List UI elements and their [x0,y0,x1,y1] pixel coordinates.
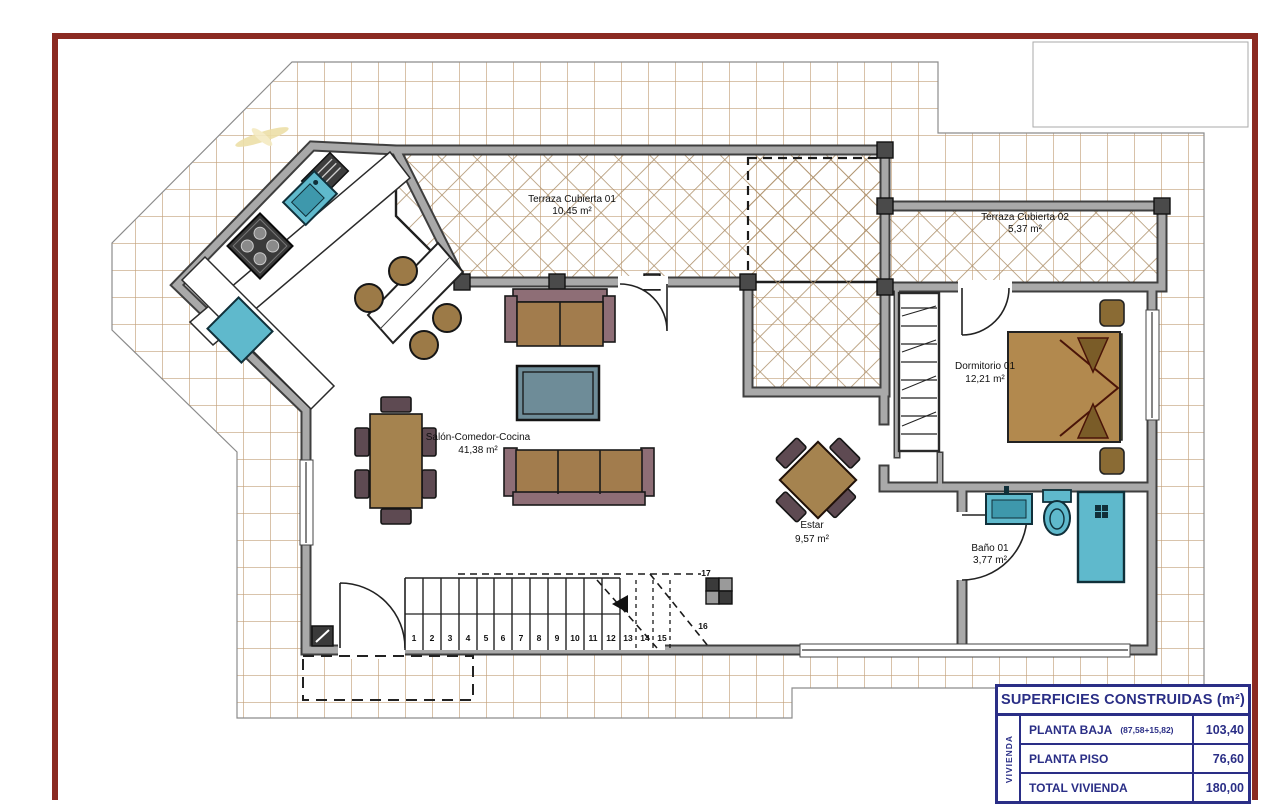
salon-name: Salón-Comedor-Cocina [426,432,531,443]
stair-number: 1 [412,633,417,643]
coffee-table [517,366,599,420]
row-value: 76,60 [1192,745,1248,772]
shower [1078,492,1124,582]
salon-area: 41,38 m² [458,445,498,456]
sofa-three-seat [504,448,654,505]
terraza1-name: Terraza Cubierta 01 [528,194,616,205]
stair-number: 10 [570,633,580,643]
row-label: TOTAL VIVIENDA [1029,781,1128,795]
table-row: PLANTA PISO 76,60 [1021,745,1248,774]
surfaces-summary-table: SUPERFICIES CONSTRUIDAS (m²) VIVIENDA PL… [995,684,1251,804]
summary-group-column: VIVIENDA [998,716,1021,801]
bathroom-door-opening [955,512,969,580]
terraza2-name: Terraza Cubierta 02 [981,212,1069,223]
stair-number: 7 [519,633,524,643]
row-label: PLANTA PISO [1029,752,1108,766]
terrace-door-opening [618,276,668,289]
stair-number-top: 17 [701,568,711,578]
stair-number: 15 [657,633,667,643]
table-row: TOTAL VIVIENDA 180,00 [1021,774,1248,801]
stair-number: 13 [623,633,633,643]
stair-number: 8 [537,633,542,643]
dormitorio-area: 12,21 m² [965,374,1005,385]
table-row: PLANTA BAJA (87,58+15,82) 103,40 [1021,716,1248,745]
entrance-utility-box [312,626,333,646]
stair-number: 9 [555,633,560,643]
stair-number: 11 [589,633,598,643]
floor-plan-sheet: 1 2 3 4 5 6 7 8 9 10 11 12 13 14 15 17 1… [0,0,1280,800]
sofa-two-seat [505,289,615,346]
stair-number: 14 [640,633,650,643]
stair-number: 12 [606,633,616,643]
nightstand [1100,300,1124,326]
row-value: 103,40 [1192,716,1248,743]
row-value: 180,00 [1192,774,1248,801]
summary-group-label: VIVIENDA [1004,734,1014,782]
revision-patch [1033,42,1248,127]
dormitorio-name: Dormitorio 01 [955,361,1015,372]
row-note: (87,58+15,82) [1120,725,1173,735]
row-label: PLANTA BAJA [1029,723,1112,737]
stair-number: 5 [484,633,489,643]
toilet [1043,490,1071,535]
floor-plan-drawing: 1 2 3 4 5 6 7 8 9 10 11 12 13 14 15 17 1… [0,0,1280,800]
open-court-hatch [748,158,885,392]
stair-number: 2 [430,633,435,643]
summary-table-title: SUPERFICIES CONSTRUIDAS (m²) [998,687,1248,716]
terraza1-area: 10,45 m² [552,206,592,217]
stair-number: 6 [501,633,506,643]
estar-name: Estar [800,520,824,531]
terraza2-area: 5,37 m² [1008,224,1043,235]
stair-number: 3 [448,633,453,643]
bedroom-door-opening [958,280,1012,294]
bano-name: Baño 01 [971,543,1009,554]
wardrobe [899,293,939,451]
stair-number-mid: 16 [698,621,708,631]
bano-area: 3,77 m² [973,555,1008,566]
nightstand [1100,448,1124,474]
stair-number: 4 [466,633,471,643]
estar-area: 9,57 m² [795,534,830,545]
